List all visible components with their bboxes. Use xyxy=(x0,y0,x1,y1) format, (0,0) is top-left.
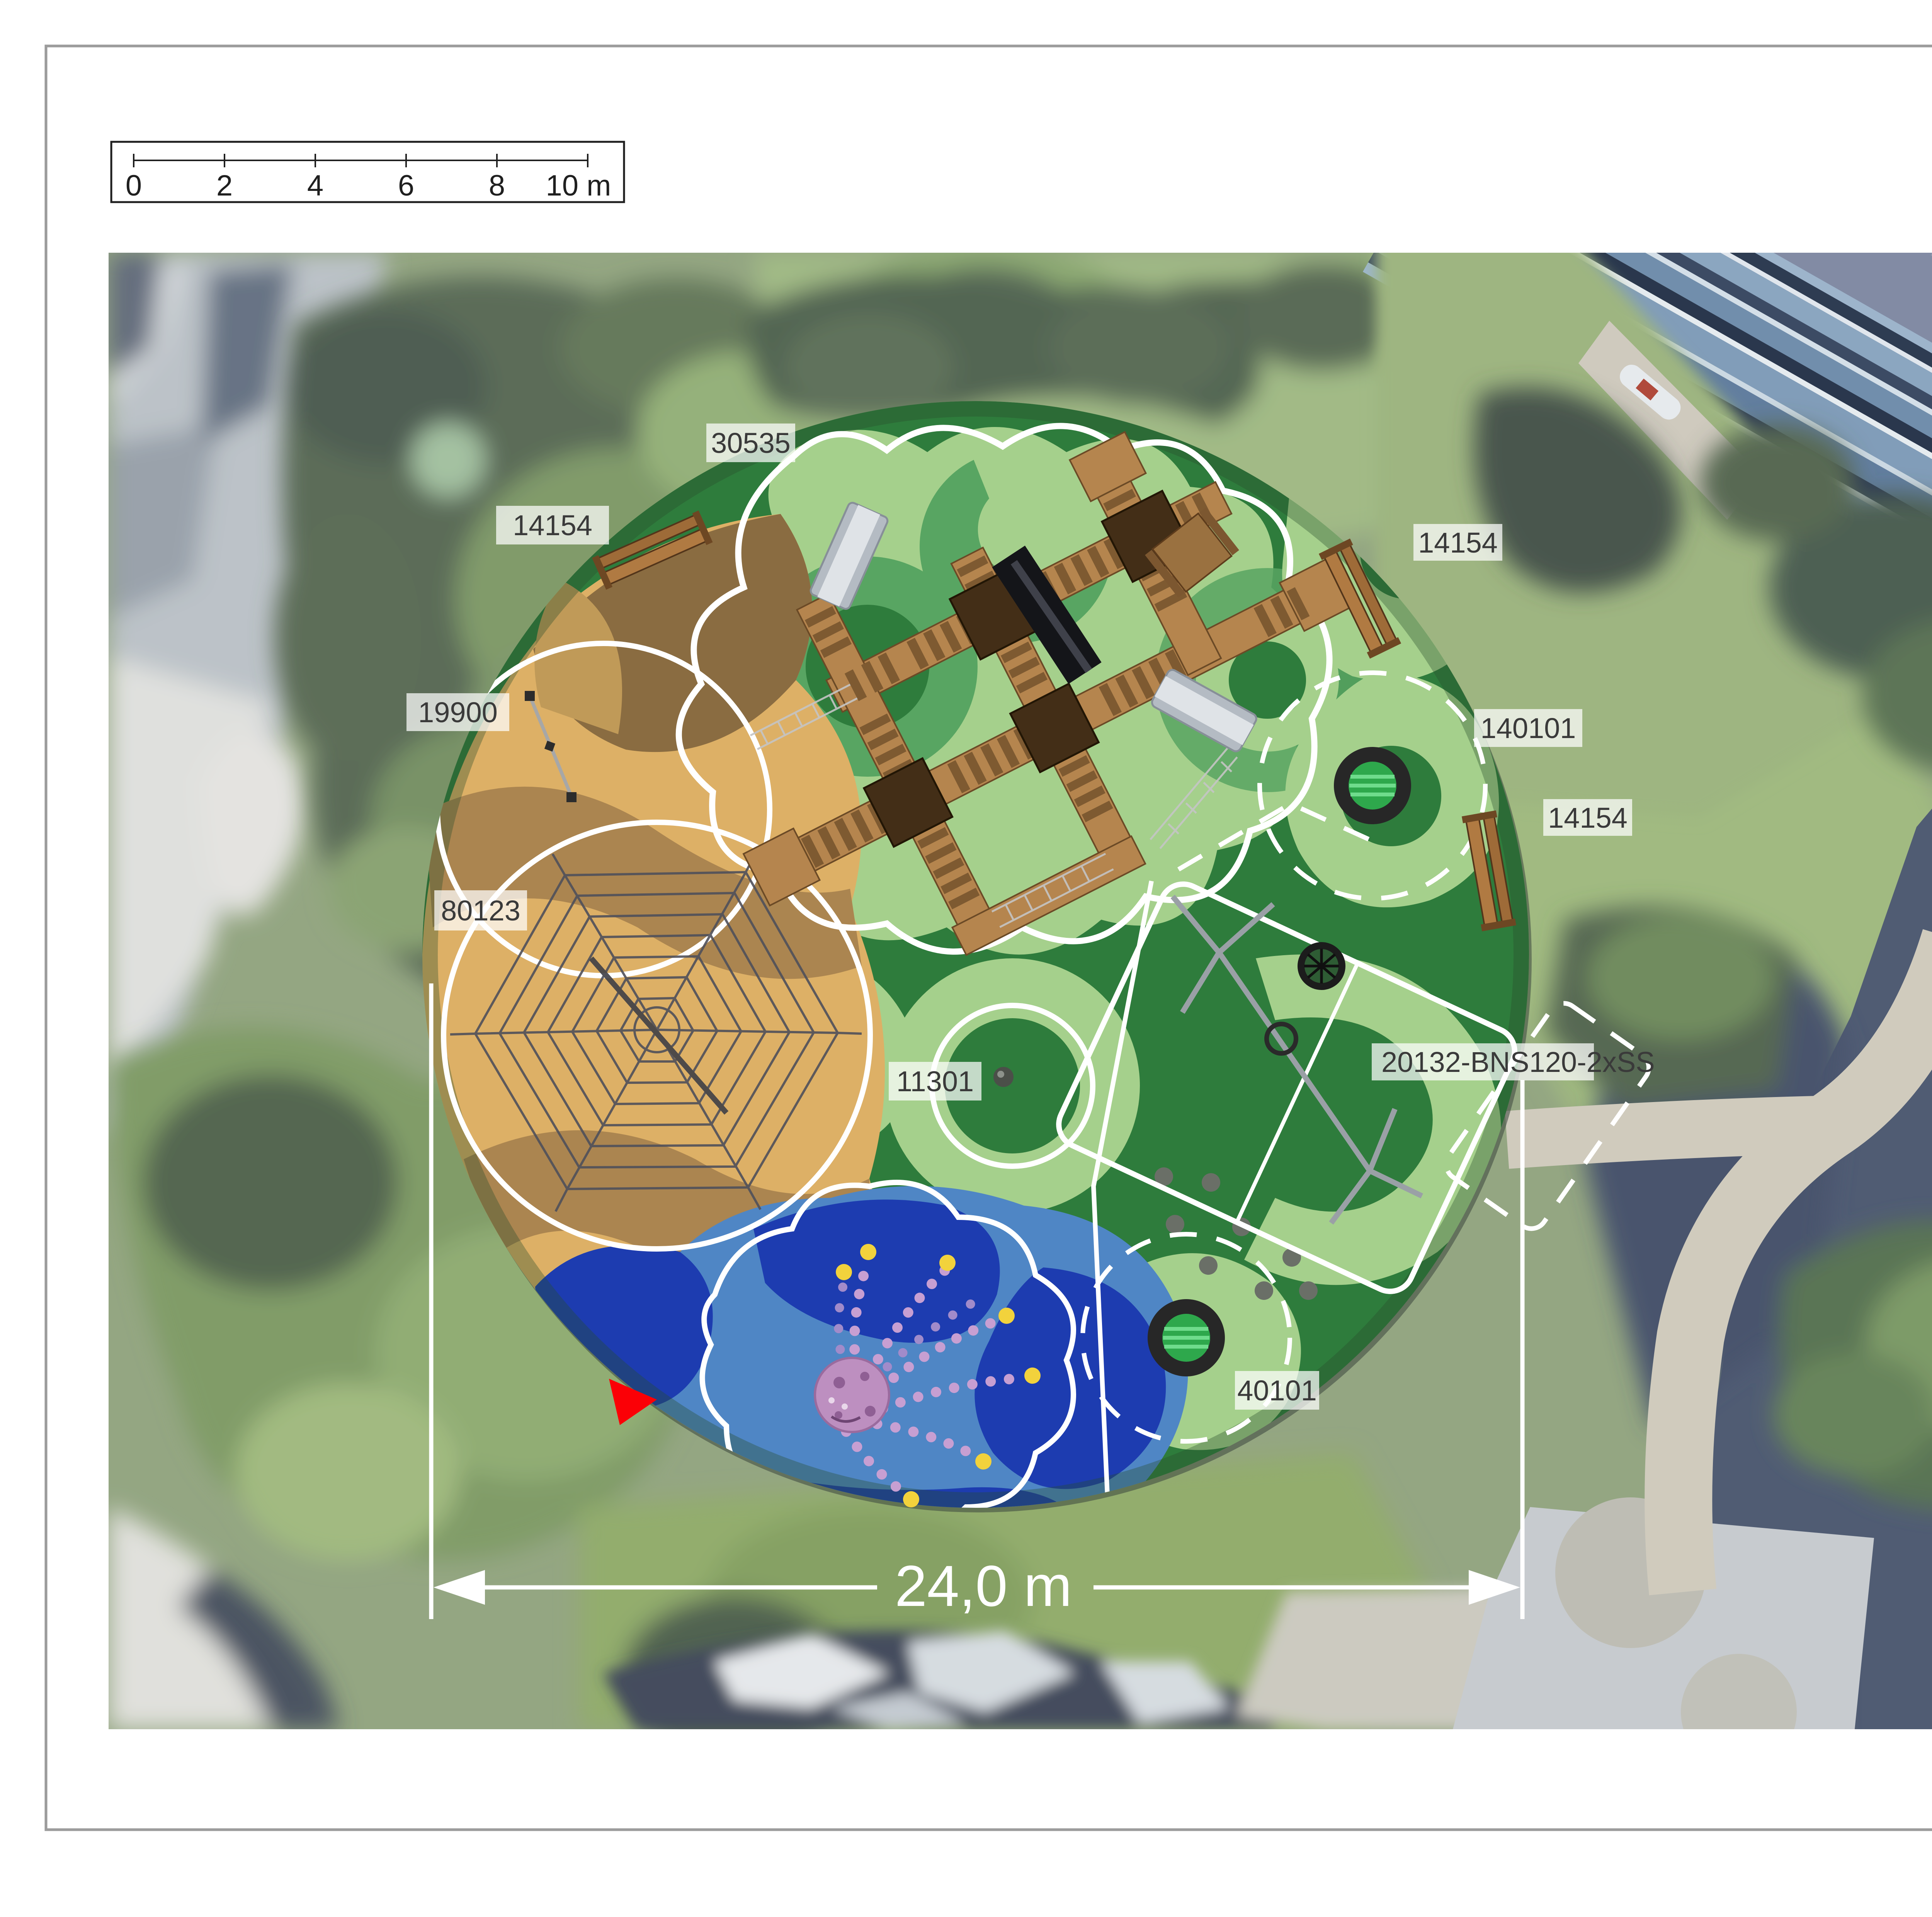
svg-text:40101: 40101 xyxy=(1237,1374,1317,1407)
svg-text:11301: 11301 xyxy=(896,1065,974,1097)
svg-text:20132-BNS120-2xSS: 20132-BNS120-2xSS xyxy=(1381,1046,1655,1078)
svg-text:19900: 19900 xyxy=(418,696,498,728)
svg-text:140101: 140101 xyxy=(1481,712,1576,744)
svg-text:14154: 14154 xyxy=(1548,802,1628,834)
svg-text:0: 0 xyxy=(126,169,142,202)
svg-text:10 m: 10 m xyxy=(546,169,611,202)
svg-text:80123: 80123 xyxy=(441,895,520,927)
svg-text:8: 8 xyxy=(489,169,505,202)
svg-text:6: 6 xyxy=(398,169,414,202)
svg-text:14154: 14154 xyxy=(513,509,592,541)
svg-text:4: 4 xyxy=(307,169,323,202)
svg-text:14154: 14154 xyxy=(1418,527,1498,559)
svg-text:24,0 m: 24,0 m xyxy=(895,1553,1072,1618)
svg-text:30535: 30535 xyxy=(711,427,791,459)
svg-text:2: 2 xyxy=(216,169,233,202)
